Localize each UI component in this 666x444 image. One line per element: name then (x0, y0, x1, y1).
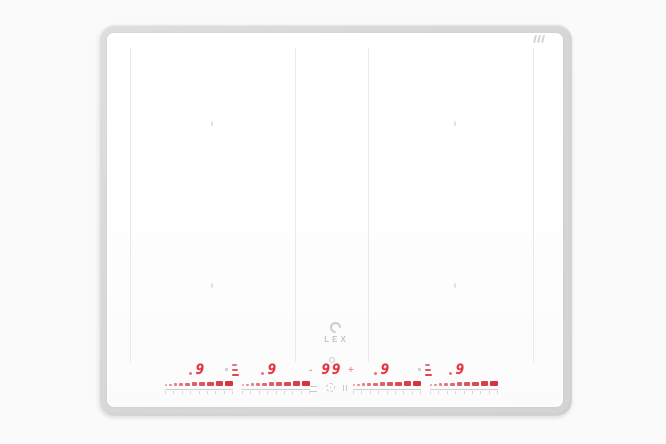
zone-divider-line (295, 48, 296, 362)
zone-divider-line (368, 48, 369, 362)
slider-scale-line (165, 389, 233, 390)
zone-center-marker (454, 283, 456, 288)
zone-divider-line (130, 48, 131, 362)
zone-right-outer-level-display: 9 (445, 363, 475, 377)
zone-right-inner-power-slider[interactable] (353, 380, 421, 386)
timer-display: 99 (318, 363, 346, 377)
product-photo: LEX 9 9 - 99 + (0, 0, 666, 444)
zone-center-marker (211, 283, 213, 288)
timer-plus-button[interactable]: + (348, 365, 354, 376)
bridge-function-icon[interactable] (225, 364, 239, 376)
residual-heat-icon (534, 35, 544, 44)
power-icon[interactable] (326, 383, 335, 392)
zone-center-marker (454, 121, 456, 126)
slider-scale-line (242, 389, 310, 390)
brand-logo-text: LEX (313, 335, 357, 344)
slider-scale-ticks (165, 391, 233, 394)
bridge-function-icon[interactable] (418, 364, 432, 376)
timer-minus-button[interactable]: - (309, 365, 312, 376)
pause-icon[interactable] (343, 385, 348, 391)
zone-right-outer-power-slider[interactable] (430, 380, 498, 386)
slider-scale-line (353, 389, 421, 390)
slider-scale-ticks (430, 391, 498, 394)
zone-divider-line (533, 48, 534, 362)
slider-scale-ticks (242, 391, 310, 394)
slider-scale-ticks (353, 391, 421, 394)
cooktop-frame: LEX 9 9 - 99 + (98, 24, 572, 416)
brand-logo: LEX (313, 322, 357, 344)
zone-left-inner-power-slider[interactable] (242, 380, 310, 386)
zone-left-outer-level-display: 9 (185, 363, 215, 377)
zone-left-inner-level-display: 9 (257, 363, 287, 377)
zone-left-outer-power-slider[interactable] (165, 380, 233, 386)
zone-right-inner-level-display: 9 (370, 363, 400, 377)
lex-emblem-icon (327, 320, 343, 336)
menu-icon[interactable] (310, 386, 317, 392)
slider-scale-line (430, 389, 498, 390)
zone-center-marker (211, 121, 213, 126)
cooktop-glass-surface: LEX 9 9 - 99 + (107, 33, 563, 407)
